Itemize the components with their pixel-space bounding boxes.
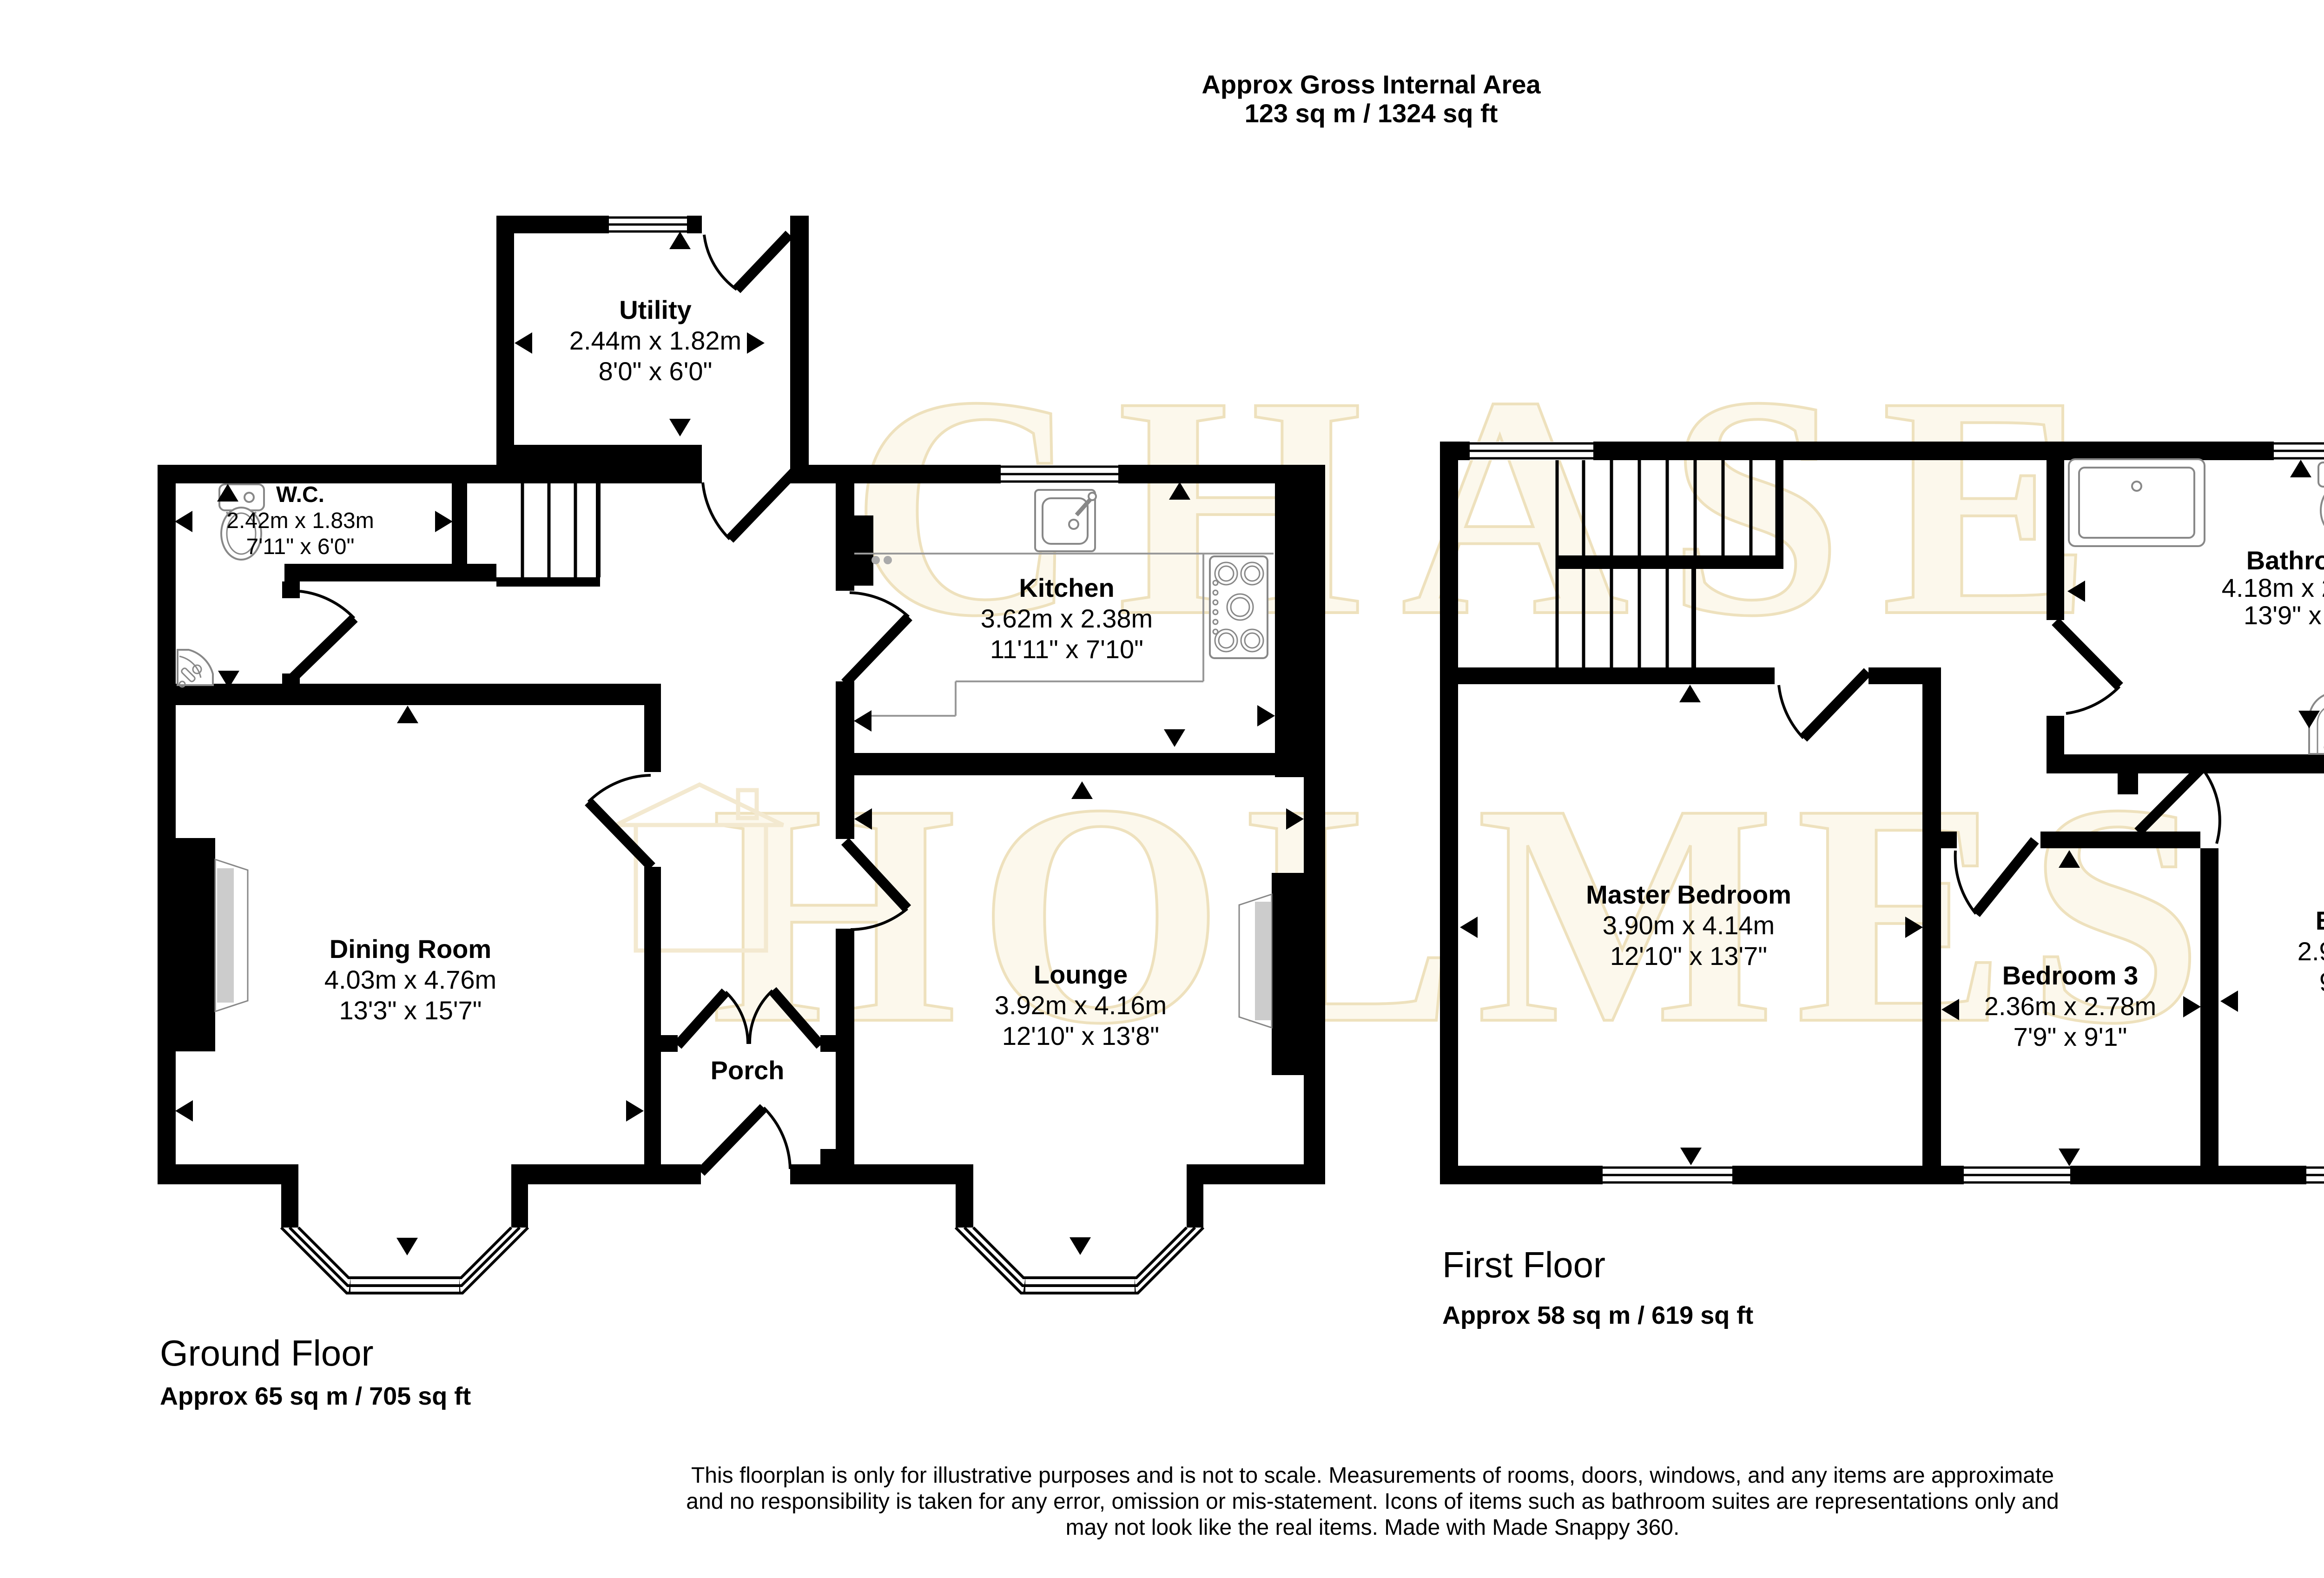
svg-text:Bathroom: Bathroom xyxy=(2246,546,2324,575)
svg-text:Lounge: Lounge xyxy=(1034,960,1128,989)
svg-text:may not look like the real ite: may not look like the real items. Made w… xyxy=(1066,1515,1680,1540)
svg-text:3.92m x 4.16m: 3.92m x 4.16m xyxy=(995,990,1167,1020)
svg-text:9'9" x 12'3": 9'9" x 12'3" xyxy=(2319,967,2324,997)
svg-text:2.36m x 2.78m: 2.36m x 2.78m xyxy=(1984,991,2156,1021)
svg-text:Approx 58 sq m / 619 sq ft: Approx 58 sq m / 619 sq ft xyxy=(1442,1301,1753,1329)
svg-text:2.44m x 1.82m: 2.44m x 1.82m xyxy=(569,326,741,355)
svg-text:2.42m x 1.83m: 2.42m x 1.83m xyxy=(226,508,374,533)
svg-text:2.97m x 3.74m: 2.97m x 3.74m xyxy=(2298,937,2324,966)
svg-text:11'11" x 7'10": 11'11" x 7'10" xyxy=(990,634,1143,664)
svg-text:W.C.: W.C. xyxy=(276,482,324,507)
svg-text:Ground Floor: Ground Floor xyxy=(160,1333,374,1373)
svg-text:13'9" x 7'2": 13'9" x 7'2" xyxy=(2244,601,2324,630)
svg-text:Dining Room: Dining Room xyxy=(330,934,491,964)
svg-text:Approx 65 sq m / 705 sq ft: Approx 65 sq m / 705 sq ft xyxy=(160,1382,471,1410)
svg-text:Bedroom 2: Bedroom 2 xyxy=(2316,906,2324,935)
svg-text:This floorplan is only for ill: This floorplan is only for illustrative … xyxy=(691,1463,2054,1488)
svg-text:7'9" x 9'1": 7'9" x 9'1" xyxy=(2014,1022,2127,1051)
svg-text:Master Bedroom: Master Bedroom xyxy=(1586,880,1791,909)
svg-text:8'0" x 6'0": 8'0" x 6'0" xyxy=(599,357,713,386)
svg-text:7'11" x 6'0": 7'11" x 6'0" xyxy=(246,535,355,559)
svg-text:Approx Gross Internal Area: Approx Gross Internal Area xyxy=(1202,70,1541,99)
svg-text:4.18m x 2.19m: 4.18m x 2.19m xyxy=(2222,573,2324,602)
svg-text:12'10" x 13'7": 12'10" x 13'7" xyxy=(1610,941,1767,971)
svg-text:and no responsibility is taken: and no responsibility is taken for any e… xyxy=(686,1489,2059,1514)
svg-text:123 sq m / 1324 sq ft: 123 sq m / 1324 sq ft xyxy=(1245,99,1498,128)
svg-text:Porch: Porch xyxy=(711,1056,785,1085)
svg-text:3.62m x 2.38m: 3.62m x 2.38m xyxy=(981,604,1153,633)
svg-text:First Floor: First Floor xyxy=(1442,1244,1605,1285)
svg-text:Kitchen: Kitchen xyxy=(1019,573,1114,602)
svg-text:3.90m x 4.14m: 3.90m x 4.14m xyxy=(1603,911,1775,940)
svg-text:12'10" x 13'8": 12'10" x 13'8" xyxy=(1002,1021,1159,1050)
svg-text:Bedroom 3: Bedroom 3 xyxy=(2002,961,2139,990)
svg-text:HOLMES: HOLMES xyxy=(711,739,2224,1089)
svg-text:Utility: Utility xyxy=(619,295,692,324)
svg-text:13'3" x 15'7": 13'3" x 15'7" xyxy=(339,996,482,1025)
svg-text:4.03m x 4.76m: 4.03m x 4.76m xyxy=(324,965,496,994)
